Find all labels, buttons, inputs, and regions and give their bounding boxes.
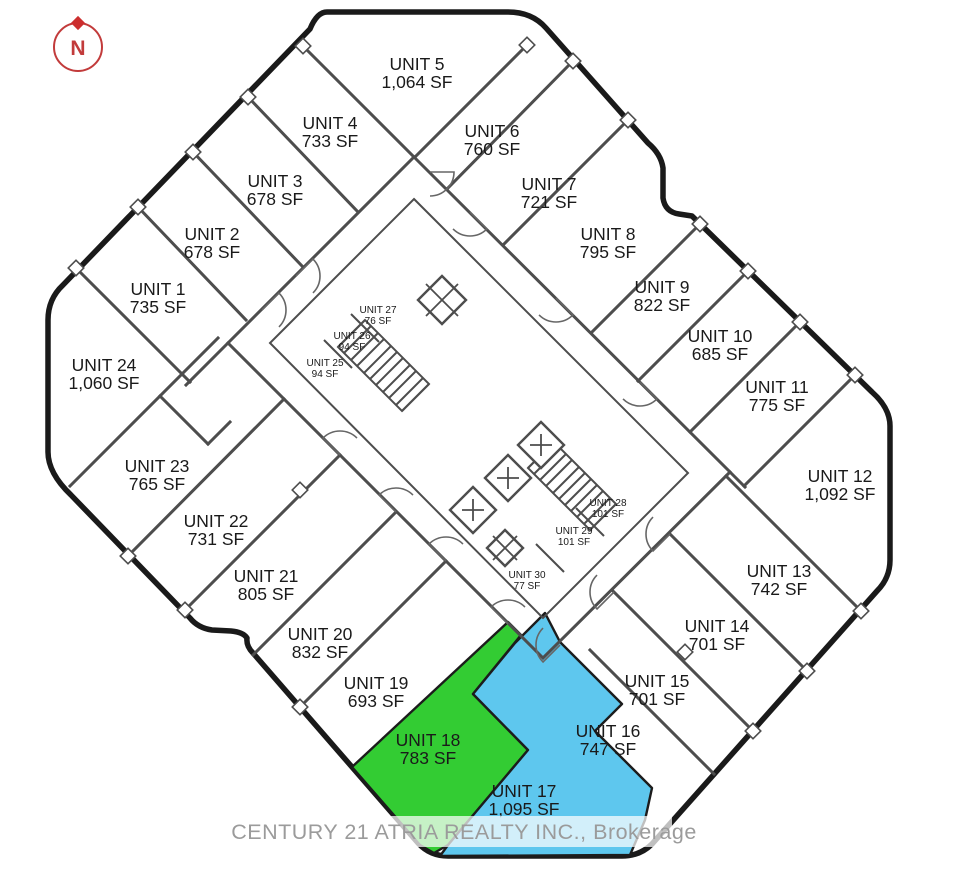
unit-area: 685 SF bbox=[692, 344, 748, 364]
unit-label: UNIT 30 bbox=[508, 570, 545, 581]
unit-area: 822 SF bbox=[634, 295, 690, 315]
unit-label: UNIT 3 bbox=[247, 171, 302, 191]
unit-label: UNIT 6 bbox=[464, 121, 519, 141]
unit-label: UNIT 26 bbox=[333, 331, 370, 342]
unit-label: UNIT 17 bbox=[492, 781, 557, 801]
unit-label: UNIT 11 bbox=[745, 377, 809, 397]
compass-north-label: N bbox=[70, 37, 85, 60]
unit-area: 1,064 SF bbox=[381, 72, 452, 92]
unit-label: UNIT 7 bbox=[521, 174, 576, 194]
unit-area: 1,092 SF bbox=[804, 484, 875, 504]
unit-area: 701 SF bbox=[629, 689, 685, 709]
unit-area: 731 SF bbox=[188, 529, 244, 549]
unit-area: 678 SF bbox=[184, 242, 240, 262]
floor-plan-page: UNIT 1 735 SF UNIT 2 678 SF UNIT 3 678 S… bbox=[0, 0, 955, 886]
unit-area: 101 SF bbox=[592, 509, 624, 520]
unit-label: UNIT 25 bbox=[306, 358, 343, 369]
unit-area: 832 SF bbox=[292, 642, 348, 662]
unit-area: 101 SF bbox=[558, 537, 590, 548]
unit-label: UNIT 5 bbox=[389, 54, 444, 74]
unit-label: UNIT 18 bbox=[396, 730, 461, 750]
unit-area: 1,060 SF bbox=[68, 373, 139, 393]
unit-label: UNIT 22 bbox=[184, 511, 249, 531]
unit-label: UNIT 28 bbox=[589, 498, 626, 509]
unit-label: UNIT 9 bbox=[634, 277, 689, 297]
unit-area: 76 SF bbox=[365, 316, 392, 327]
compass: N bbox=[54, 16, 102, 71]
unit-area: 783 SF bbox=[400, 748, 456, 768]
unit-area: 775 SF bbox=[749, 395, 805, 415]
unit-label: UNIT 21 bbox=[234, 566, 299, 586]
unit-area: 795 SF bbox=[580, 242, 636, 262]
unit-label: UNIT 1 bbox=[130, 279, 185, 299]
watermark-text: CENTURY 21 ATRIA REALTY INC., Brokerage bbox=[231, 820, 697, 844]
unit-label: UNIT 10 bbox=[688, 326, 753, 346]
unit-area: 701 SF bbox=[689, 634, 745, 654]
unit-label: UNIT 27 bbox=[359, 305, 396, 316]
unit-area: 678 SF bbox=[247, 189, 303, 209]
unit-label: UNIT 2 bbox=[184, 224, 239, 244]
unit-label: UNIT 16 bbox=[576, 721, 641, 741]
unit-area: 735 SF bbox=[130, 297, 186, 317]
unit-area: 77 SF bbox=[514, 581, 541, 592]
unit-area: 94 SF bbox=[312, 369, 339, 380]
unit-label: UNIT 8 bbox=[580, 224, 635, 244]
unit-area: 721 SF bbox=[521, 192, 577, 212]
unit-area: 765 SF bbox=[129, 474, 185, 494]
unit-area: 805 SF bbox=[238, 584, 294, 604]
unit-label: UNIT 19 bbox=[344, 673, 409, 693]
unit-area: 733 SF bbox=[302, 131, 358, 151]
unit-label: UNIT 14 bbox=[685, 616, 750, 636]
unit-label: UNIT 12 bbox=[808, 466, 873, 486]
unit-area: 747 SF bbox=[580, 739, 636, 759]
floor-plan: UNIT 1 735 SF UNIT 2 678 SF UNIT 3 678 S… bbox=[0, 0, 955, 886]
unit-area: 693 SF bbox=[348, 691, 404, 711]
unit-area: 742 SF bbox=[751, 579, 807, 599]
unit-label: UNIT 23 bbox=[125, 456, 190, 476]
unit-label: UNIT 24 bbox=[72, 355, 137, 375]
unit-label: UNIT 20 bbox=[288, 624, 353, 644]
unit-label: UNIT 13 bbox=[747, 561, 812, 581]
unit-area: 760 SF bbox=[464, 139, 520, 159]
unit-label: UNIT 4 bbox=[302, 113, 357, 133]
unit-label: UNIT 29 bbox=[555, 526, 592, 537]
unit-label: UNIT 15 bbox=[625, 671, 690, 691]
watermark: CENTURY 21 ATRIA REALTY INC., Brokerage bbox=[231, 816, 697, 847]
unit-area: 94 SF bbox=[339, 342, 366, 353]
